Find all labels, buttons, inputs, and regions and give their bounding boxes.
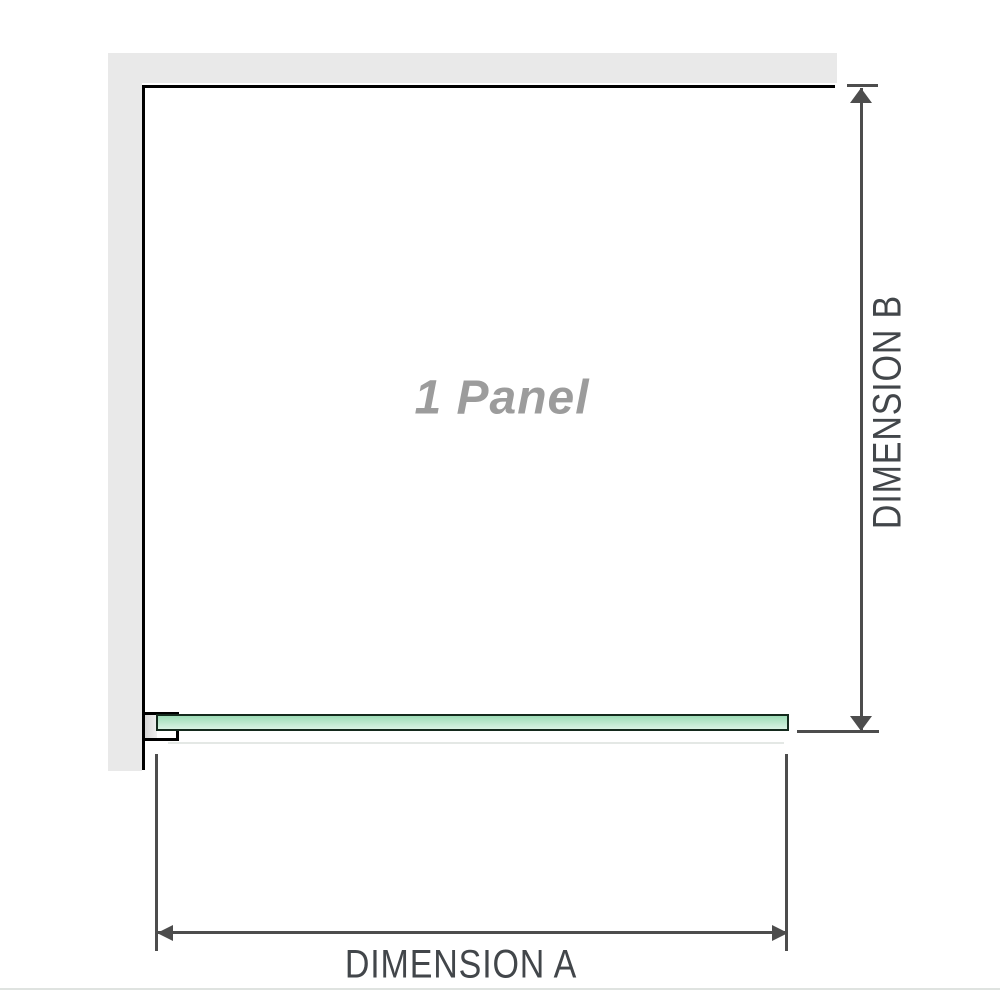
glass-panel <box>156 714 789 731</box>
dimension-a-arrowhead-left <box>157 925 173 941</box>
dimension-a-label: DIMENSION A <box>345 943 577 988</box>
dimension-b-tick-top <box>847 84 878 87</box>
dimension-a-extension-left <box>155 754 158 951</box>
wall-left-bar <box>108 53 142 771</box>
wall-inner-edge-top <box>142 85 835 88</box>
dimension-b-label: DIMENSION B <box>866 295 911 529</box>
dimension-b-arrowhead-up <box>850 88 872 103</box>
bottom-divider-line <box>0 988 1000 990</box>
dimension-a-line <box>158 931 788 934</box>
panel-count-label: 1 Panel <box>414 371 589 426</box>
dimension-b-line <box>860 88 863 731</box>
panel-dimension-diagram: 1 Panel DIMENSION B DIMENSION A <box>0 0 1000 1000</box>
wall-top-bar <box>108 53 837 83</box>
dimension-b-arrowhead-down <box>850 716 872 731</box>
wall-inner-edge-left <box>142 85 145 770</box>
glass-panel-shadow <box>168 742 784 744</box>
dimension-a-arrowhead-right <box>772 925 788 941</box>
dimension-a-extension-right <box>785 754 788 951</box>
